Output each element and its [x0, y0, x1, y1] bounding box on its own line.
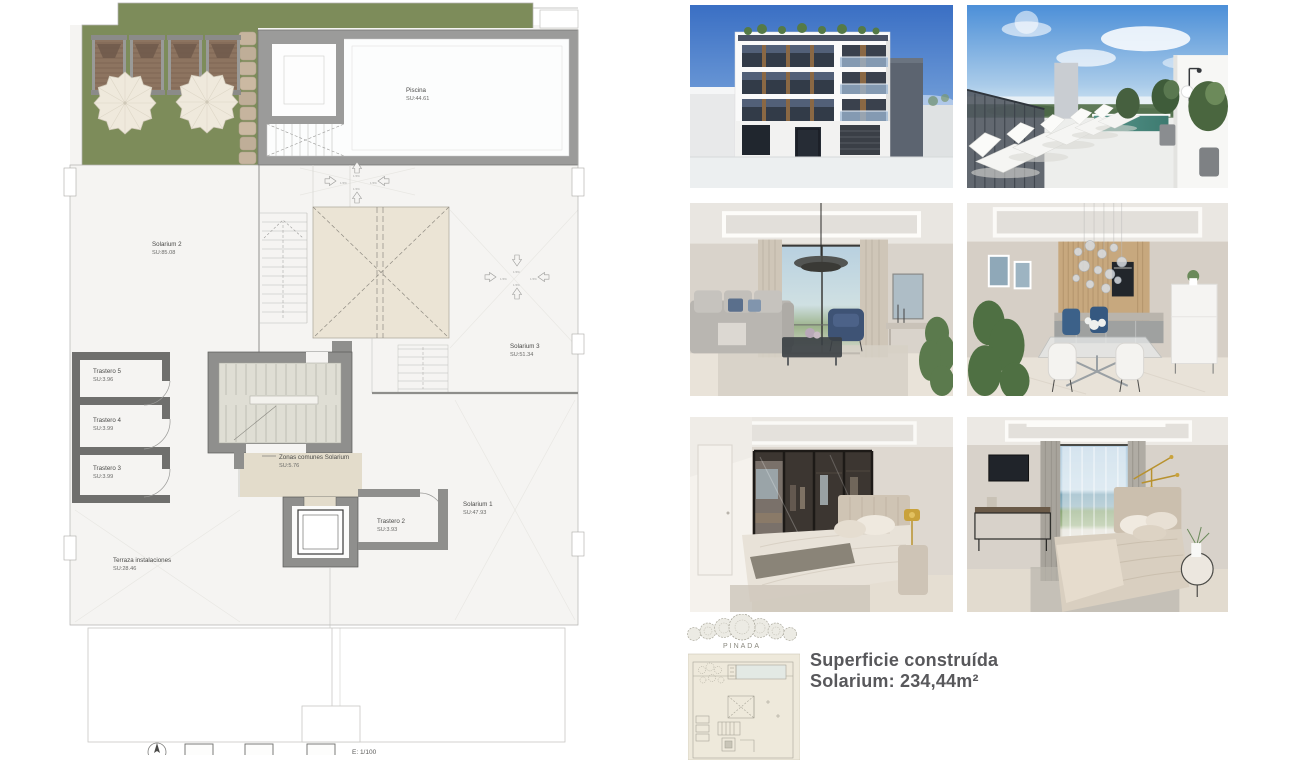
stone-path [239, 32, 256, 164]
room-label-solarium2: Solarium 2 [152, 241, 182, 248]
floor-plan-drawing: Piscina SU:44.61 [0, 0, 640, 755]
slope-label: 1.5% [340, 181, 347, 185]
photo-bedroom-ensuite [690, 417, 953, 612]
room-label-terraza: Terraza instalaciones [113, 557, 171, 564]
room-su-solarium2: SU:85.08 [152, 250, 175, 256]
site-plan-thumbnail [688, 650, 800, 760]
room-su-zonas: SU:5.76 [279, 463, 299, 469]
photo-building-facade [690, 5, 953, 188]
slope-label: 1.5% [353, 187, 360, 191]
room-su-trastero2: SU:3.93 [377, 527, 397, 533]
room-label-solarium1: Solarium 1 [463, 501, 493, 508]
photo-dining-kitchen [967, 203, 1228, 396]
surface-summary: Superficie construída Solarium: 234,44m² [810, 650, 1240, 692]
summary-line1: Superficie construída [810, 650, 1240, 671]
room-su-trastero3: SU:3.99 [93, 474, 113, 480]
room-su-trastero5: SU:3.96 [93, 377, 113, 383]
room-su-solarium1: SU:47.93 [463, 510, 486, 516]
room-label-trastero4: Trastero 4 [93, 417, 122, 424]
room-label-trastero3: Trastero 3 [93, 465, 122, 472]
room-label-trastero5: Trastero 5 [93, 368, 122, 375]
summary-line2: Solarium: 234,44m² [810, 671, 1240, 692]
photo-living-room [690, 203, 953, 396]
room-label-solarium3: Solarium 3 [510, 343, 540, 350]
room-su-solarium3: SU:51.34 [510, 352, 533, 358]
lower-floor-outline [88, 628, 565, 742]
room-su-trastero4: SU:3.99 [93, 426, 113, 432]
pine-grove-sketch [684, 614, 800, 644]
slope-label: 1.5% [353, 174, 360, 178]
slope-label: 1.5% [530, 277, 537, 281]
room-su-piscina: SU:44.61 [406, 96, 429, 102]
slope-label: 1.5% [513, 270, 520, 274]
scale-label: E: 1/100 [352, 749, 377, 755]
room-su-terraza: SU:28.46 [113, 566, 136, 572]
slope-label: 1.5% [500, 277, 507, 281]
skylight [313, 207, 449, 338]
photo-bedroom-view [967, 417, 1228, 612]
pinada-label: PINADA [684, 643, 800, 650]
photo-roof-terrace [967, 5, 1228, 188]
slope-label: 1.5% [513, 283, 520, 287]
room-label-zonas: Zonas comunes Solarium [279, 454, 349, 461]
scale-bar: E: 1/100 [148, 743, 377, 755]
stair-core [208, 341, 352, 454]
room-label-trastero2: Trastero 2 [377, 518, 406, 525]
room-label-piscina: Piscina [406, 87, 427, 94]
slope-label: 1.5% [370, 181, 377, 185]
